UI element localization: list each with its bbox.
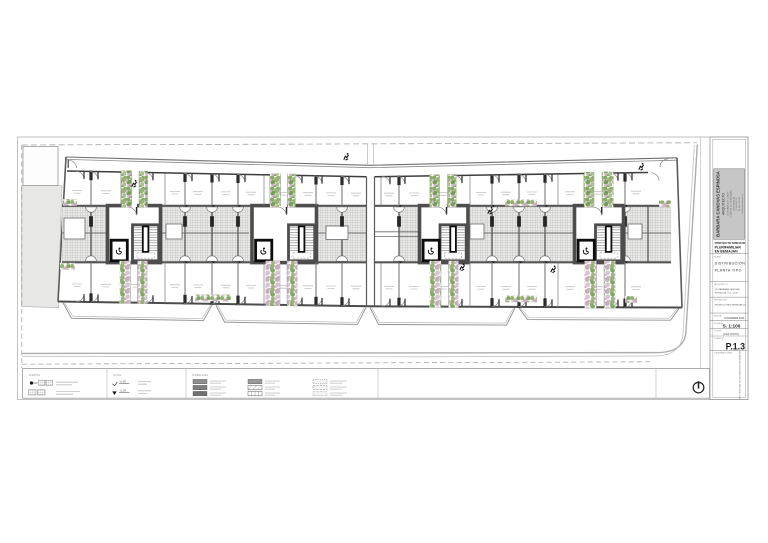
- svg-text:COLEGIADA 2105 COACM: COLEGIADA 2105 COACM: [727, 191, 730, 216]
- svg-text:OBSERVACIONES:: OBSERVACIONES:: [714, 351, 733, 354]
- svg-text:PUERTAS: PUERTAS: [29, 374, 40, 377]
- svg-text:+2.85: +2.85: [120, 380, 127, 383]
- svg-text:Dª. BARBARA CANOVAS: Dª. BARBARA CANOVAS: [715, 288, 741, 291]
- svg-text:Nº EXP:: Nº EXP:: [714, 329, 722, 332]
- svg-text:+2.85: +2.85: [120, 390, 127, 393]
- svg-text:ARQUITECTO: ARQUITECTO: [722, 193, 726, 216]
- svg-text:EN BENIAJAN: EN BENIAJAN: [715, 250, 739, 254]
- svg-text:T. 968 824 105: T. 968 824 105: [736, 196, 738, 210]
- svg-text:M. 650 112 334: M. 650 112 334: [739, 196, 741, 211]
- svg-text:BARBARA CANOVAS ESPINOSA: BARBARA CANOVAS ESPINOSA: [716, 171, 721, 237]
- svg-text:FECHA:: FECHA:: [714, 314, 722, 317]
- svg-text:(216-XXXX): (216-XXXX): [723, 332, 739, 336]
- svg-text:PLANTA TIPO: PLANTA TIPO: [715, 268, 742, 272]
- svg-text:SUPERFICIES: SUPERFICIES: [192, 374, 208, 377]
- svg-text:ESPINOSA. COL. 2105: ESPINOSA. COL. 2105: [715, 292, 739, 295]
- svg-text:COTAS: COTAS: [113, 374, 121, 377]
- svg-text:DICIEMBRE 2021: DICIEMBRE 2021: [724, 317, 745, 320]
- svg-text:S. 1:100: S. 1:100: [723, 324, 741, 329]
- svg-text:PLANO Nº:: PLANO Nº:: [714, 337, 725, 340]
- svg-text:PROMOCIONES BENIAJAN S.L.: PROMOCIONES BENIAJAN S.L.: [715, 303, 748, 306]
- svg-text:DISTRIBUCIÓN: DISTRIBUCIÓN: [715, 260, 746, 265]
- svg-text:PROMOTOR:: PROMOTOR:: [714, 300, 727, 302]
- svg-text:30570 MURCIA: 30570 MURCIA: [732, 196, 735, 211]
- svg-text:estudio@bcanovas.es: estudio@bcanovas.es: [741, 194, 744, 214]
- svg-text:C/ MAYOR 12 1º B BENIAJAN: C/ MAYOR 12 1º B BENIAJAN: [729, 190, 732, 218]
- svg-text:ARQUITECTO:: ARQUITECTO:: [714, 283, 729, 286]
- svg-text:PLANO:: PLANO:: [714, 255, 722, 258]
- svg-text:P.1.3: P.1.3: [726, 341, 746, 351]
- svg-text:REF. CATASTRAL 001234500XH60D0: REF. CATASTRAL 001234500XH60D0001SK BENI…: [739, 350, 742, 399]
